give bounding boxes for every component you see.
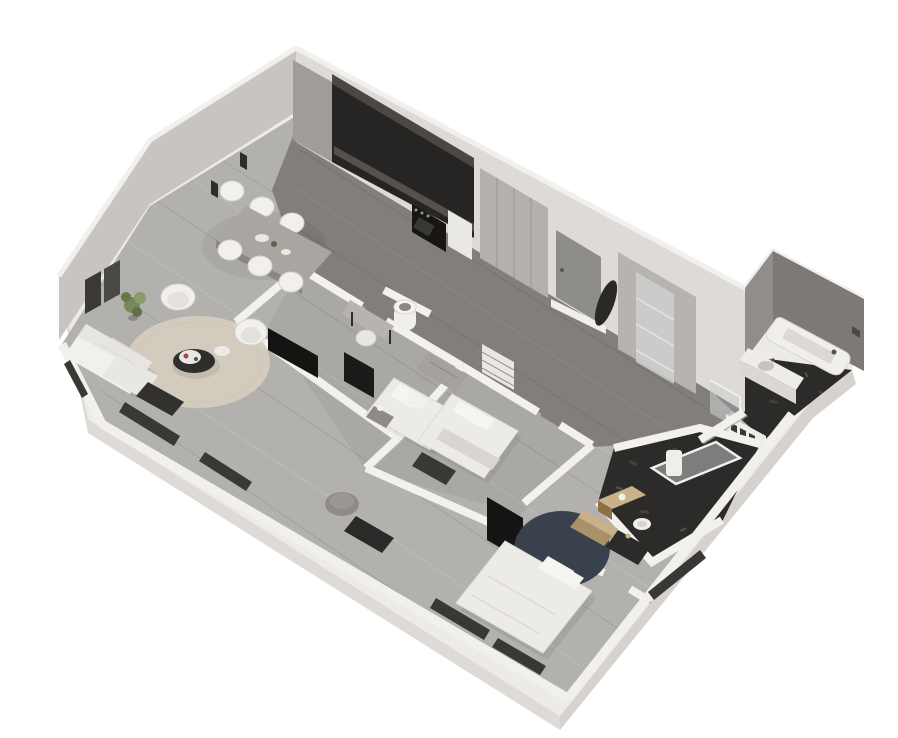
vanity-basin (758, 361, 774, 371)
toilet-seat (637, 521, 647, 527)
washbasin-bowl (399, 303, 411, 311)
desk-chair (356, 330, 376, 346)
lamp (377, 405, 383, 411)
dining-chair (220, 181, 244, 201)
coffee-table-top (179, 350, 201, 364)
floor-plan-render (0, 0, 898, 738)
armchair-1-seat (167, 292, 189, 308)
tub-faucet (832, 350, 837, 355)
plant-leaves (121, 292, 131, 302)
table-decor (184, 354, 189, 359)
oven-knob (421, 212, 424, 215)
table-decor (194, 357, 198, 361)
plant-leaves (132, 307, 142, 317)
dining-chair (279, 272, 303, 292)
oven-knob (415, 209, 418, 212)
table-decor-bowl (271, 241, 277, 247)
shower-column (666, 450, 682, 476)
plant-leaves (134, 292, 146, 304)
table-decor-plate (255, 234, 269, 242)
armchair-2-seat (241, 327, 261, 343)
ottoman-top (330, 493, 354, 509)
table-decor-plate (281, 249, 291, 255)
oven-knob (427, 215, 430, 218)
nightstand-decor (626, 534, 631, 539)
vanity-basin (619, 494, 626, 501)
door-handle (560, 268, 564, 272)
vanity-faucet (771, 358, 775, 362)
dining-chair (248, 256, 272, 276)
floor-plan-svg (0, 0, 898, 738)
dining-chair (218, 240, 242, 260)
side-table (214, 346, 230, 356)
